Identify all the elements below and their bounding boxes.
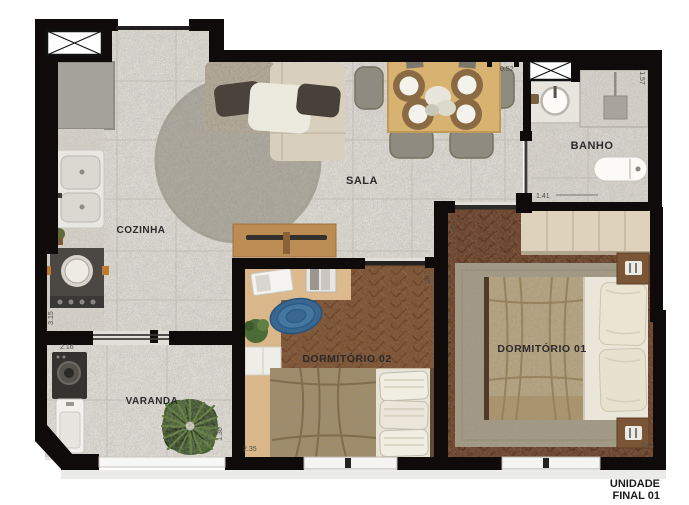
svg-text:3.15: 3.15 bbox=[48, 311, 55, 325]
svg-text:DORMITÓRIO 02: DORMITÓRIO 02 bbox=[302, 352, 391, 365]
svg-text:VARANDA: VARANDA bbox=[126, 396, 179, 407]
svg-text:BANHO: BANHO bbox=[571, 140, 614, 152]
svg-text:SALA: SALA bbox=[346, 175, 378, 187]
svg-text:2.16: 2.16 bbox=[60, 344, 74, 351]
svg-text:1.41: 1.41 bbox=[536, 193, 550, 200]
svg-text:2.41: 2.41 bbox=[641, 442, 655, 449]
svg-text:1.57: 1.57 bbox=[638, 71, 645, 85]
svg-text:2.85: 2.85 bbox=[450, 218, 457, 232]
svg-text:1.36: 1.36 bbox=[217, 427, 224, 441]
svg-text:2.35: 2.35 bbox=[243, 446, 257, 453]
svg-text:UNIDADE: UNIDADE bbox=[610, 478, 660, 490]
svg-text:DORMITÓRIO 01: DORMITÓRIO 01 bbox=[497, 342, 586, 355]
svg-text:2.45: 2.45 bbox=[423, 270, 430, 284]
svg-text:COZINHA: COZINHA bbox=[116, 225, 165, 236]
svg-text:FINAL 01: FINAL 01 bbox=[613, 490, 660, 502]
svg-text:0.52: 0.52 bbox=[500, 66, 514, 73]
